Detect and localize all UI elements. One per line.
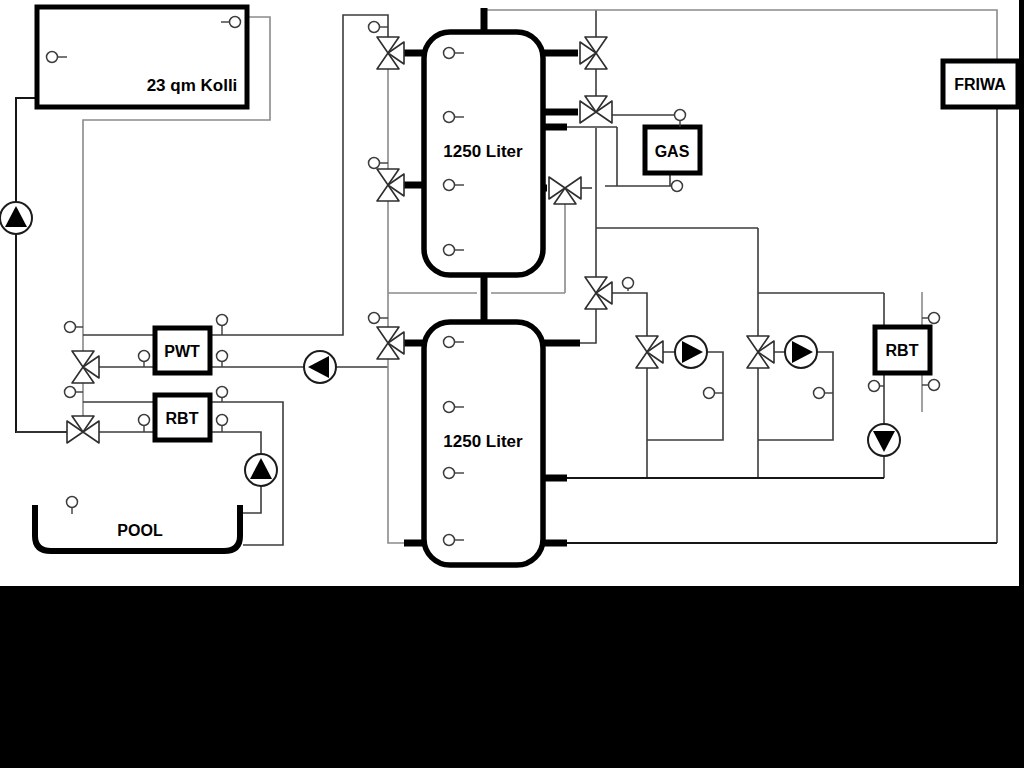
gas-label: GAS: [655, 143, 690, 160]
pump-heating-group2: [785, 336, 817, 368]
collector-label: 23 qm Kolli: [147, 76, 238, 95]
pump-rbt-right: [868, 424, 900, 456]
black-right-strip: [1019, 0, 1024, 586]
schematic-screenshot: 23 qm Kolli 1250 Liter 1250 Liter PWT RB…: [0, 0, 1024, 768]
rbt-left-label: RBT: [166, 410, 199, 427]
pump-pwt: [304, 351, 336, 383]
pump-heating-group1: [675, 336, 707, 368]
black-bottom-band: [0, 586, 1024, 768]
pump-pool: [245, 454, 277, 486]
pool-label: POOL: [117, 522, 163, 539]
pump-solar: [0, 202, 32, 234]
tank-bottom-label: 1250 Liter: [443, 432, 523, 451]
rbt-right-label: RBT: [886, 342, 919, 359]
friwa-label: FRIWA: [954, 76, 1006, 93]
tank-top-label: 1250 Liter: [443, 142, 523, 161]
pwt-label: PWT: [164, 343, 200, 360]
heating-schematic: 23 qm Kolli 1250 Liter 1250 Liter PWT RB…: [0, 0, 1024, 768]
sensor-gas-return: [672, 181, 683, 192]
